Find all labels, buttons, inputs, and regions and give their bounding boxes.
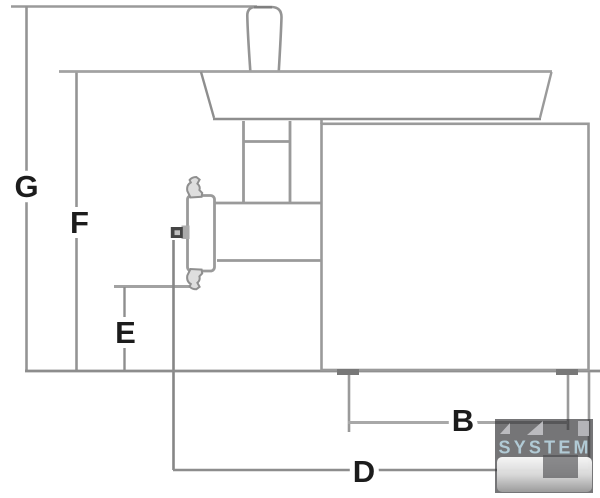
svg-text:D: D (353, 454, 375, 489)
svg-text:SYSTEM: SYSTEM (499, 438, 592, 458)
svg-text:G: G (14, 169, 38, 204)
svg-text:B: B (452, 403, 474, 438)
svg-text:F: F (70, 205, 89, 240)
svg-text:E: E (115, 315, 136, 350)
